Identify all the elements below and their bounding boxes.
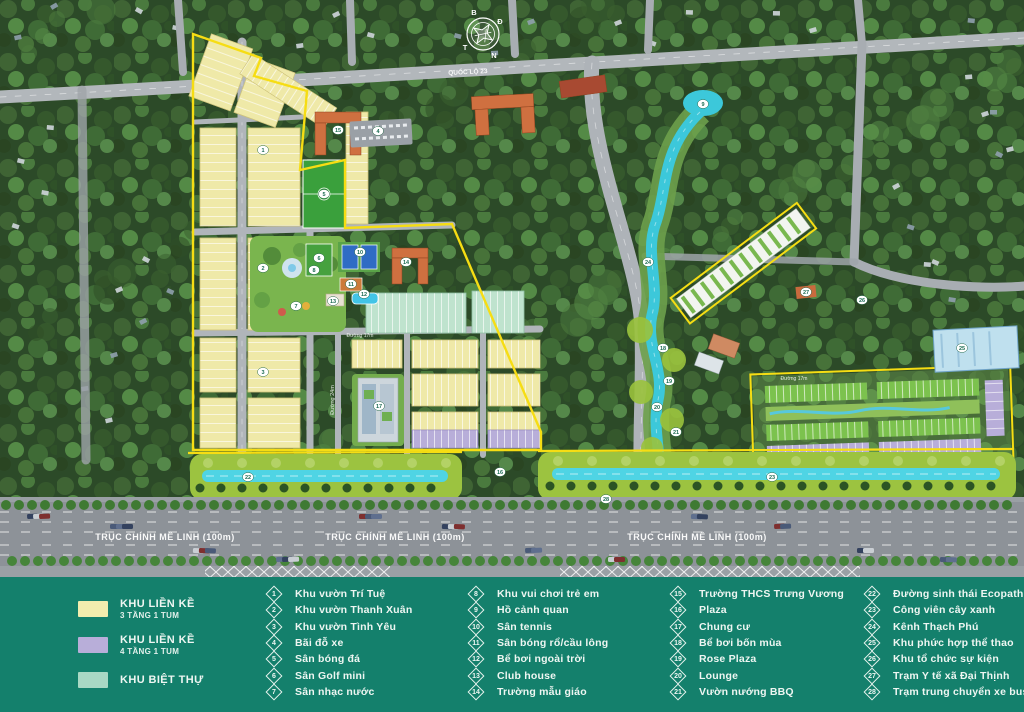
legend-item-number-badge: 5 — [266, 651, 283, 668]
svg-text:1: 1 — [261, 148, 264, 154]
legend-item-label: Khu vườn Thanh Xuân — [295, 604, 412, 616]
map-marker: 22 — [243, 473, 254, 482]
legend-item: 23Công viên cây xanh — [864, 602, 1024, 618]
legend-item-number-badge: 18 — [670, 635, 687, 652]
road-label-main-axis: TRỤC CHÍNH MÊ LINH (100m) — [627, 531, 767, 542]
map-marker: 1 — [258, 146, 269, 155]
map-marker: 25 — [957, 344, 968, 353]
legend-item-number-badge: 11 — [468, 635, 485, 652]
legend-swatch-row-bietthu: KHU BIỆT THỰ — [78, 672, 204, 688]
legend-swatch-row-lienke3: KHU LIỀN KỀ 3 TẦNG 1 TUM — [78, 598, 195, 620]
legend-item-label: Hồ cảnh quan — [497, 604, 569, 616]
swatch-label: KHU BIỆT THỰ — [120, 674, 204, 687]
map-marker: 21 — [671, 428, 682, 437]
svg-text:17: 17 — [376, 404, 382, 410]
legend-item-number-badge: 12 — [468, 651, 485, 668]
legend-item-number-badge: 25 — [864, 635, 881, 652]
svg-text:11: 11 — [348, 282, 354, 288]
legend-item: 13Club house — [468, 667, 608, 683]
legend-item-number-badge: 23 — [864, 602, 881, 619]
legend-item-label: Khu phức hợp thể thao — [893, 637, 1014, 649]
legend-item: 18Bể bơi bốn mùa — [670, 635, 844, 651]
legend-item-number-badge: 28 — [864, 683, 881, 700]
legend-item-label: Sân Golf mini — [295, 670, 365, 682]
map-marker: 20 — [652, 403, 663, 412]
road-label-main-axis: TRỤC CHÍNH MÊ LINH (100m) — [325, 531, 465, 542]
svg-text:26: 26 — [859, 298, 865, 304]
legend-item-number-badge: 6 — [266, 667, 283, 684]
legend-item-number-badge: 13 — [468, 667, 485, 684]
map-marker: 27 — [801, 288, 812, 297]
svg-text:14: 14 — [403, 260, 410, 266]
legend-item-number-badge: 21 — [670, 683, 687, 700]
map-canvas: TRỤC CHÍNH MÊ LINH (100m) TRỤC CHÍNH MÊ … — [0, 0, 1024, 577]
legend-item-label: Bể bơi bốn mùa — [699, 637, 782, 649]
legend-item-label: Sân nhạc nước — [295, 686, 375, 698]
svg-text:15: 15 — [335, 128, 341, 134]
legend-item-label: Bể bơi ngoài trời — [497, 653, 585, 665]
legend-item-label: Kênh Thạch Phú — [893, 621, 979, 633]
sports-complex — [933, 326, 1019, 372]
legend-item: 28Trạm trung chuyển xe bus — [864, 684, 1024, 700]
svg-text:13: 13 — [330, 299, 336, 305]
swatch-sublabel: 4 TẦNG 1 TUM — [120, 647, 195, 656]
map-marker: 6 — [314, 254, 325, 263]
legend-item: 25Khu phức hợp thể thao — [864, 635, 1024, 651]
road-label-17m: Đường 17m — [781, 376, 808, 382]
legend-item: 8Khu vui chơi trẻ em — [468, 586, 608, 602]
map-marker: 2 — [258, 264, 269, 273]
map-marker: 23 — [767, 473, 778, 482]
map-marker: 15 — [333, 126, 344, 135]
swatch-label: KHU LIỀN KỀ — [120, 634, 195, 647]
legend-item: 27Trạm Y tế xã Đại Thịnh — [864, 667, 1024, 683]
legend-item-number-badge: 22 — [864, 586, 881, 603]
compass-letter-east: Đ — [497, 17, 503, 26]
legend-item-label: Chung cư — [699, 621, 750, 633]
svg-text:19: 19 — [666, 379, 672, 385]
villa-blocks-mint — [366, 291, 524, 333]
road-label-24m: Đường 24m — [330, 385, 336, 415]
legend-item-label: Lounge — [699, 670, 738, 682]
legend-item-label: Công viên cây xanh — [893, 604, 995, 616]
map-marker: 12 — [359, 290, 370, 299]
legend-item-number-badge: 2 — [266, 602, 283, 619]
legend-item-number-badge: 1 — [266, 586, 283, 603]
legend-item-label: Trạm trung chuyển xe bus — [893, 686, 1024, 698]
legend-item-label: Plaza — [699, 604, 727, 616]
legend-item: 6Sân Golf mini — [266, 667, 412, 683]
svg-text:3: 3 — [261, 370, 264, 376]
svg-text:21: 21 — [673, 430, 679, 436]
svg-text:16: 16 — [497, 470, 503, 476]
legend-item: 21Vườn nướng BBQ — [670, 684, 844, 700]
road-label-17m: Đường 17m — [347, 333, 374, 339]
plot-blocks-lavender — [412, 430, 540, 448]
legend-item: 15Trường THCS Trưng Vương — [670, 586, 844, 602]
legend-column-2: 8Khu vui chơi trẻ em9Hồ cảnh quan10Sân t… — [468, 586, 608, 700]
legend-column-1: 1Khu vườn Trí Tuệ2Khu vườn Thanh Xuân3Kh… — [266, 586, 412, 700]
legend-item: 22Đường sinh thái Ecopath — [864, 586, 1024, 602]
svg-text:5: 5 — [322, 192, 325, 198]
svg-text:20: 20 — [654, 405, 660, 411]
legend-item: 12Bể bơi ngoài trời — [468, 651, 608, 667]
svg-text:28: 28 — [603, 497, 609, 503]
legend-item-label: Khu vui chơi trẻ em — [497, 588, 599, 600]
map-marker: 11 — [346, 280, 357, 289]
svg-text:6: 6 — [317, 256, 320, 262]
legend-item-label: Sân bóng đá — [295, 653, 360, 665]
map-marker: 17 — [374, 402, 385, 411]
swatch-lienke3 — [78, 601, 108, 617]
map-marker: 16 — [495, 468, 506, 477]
legend-item-number-badge: 4 — [266, 635, 283, 652]
legend-item: 4Bãi đỗ xe — [266, 635, 412, 651]
svg-text:8: 8 — [312, 268, 315, 274]
map-marker: 18 — [658, 344, 669, 353]
map-marker: 7 — [291, 302, 302, 311]
swatch-label: KHU LIỀN KỀ — [120, 598, 195, 611]
swatch-lienke4 — [78, 637, 108, 653]
svg-text:12: 12 — [361, 292, 367, 298]
legend-item-label: Trạm Y tế xã Đại Thịnh — [893, 670, 1010, 682]
legend-item: 11Sân bóng rổ/cầu lông — [468, 635, 608, 651]
legend-item-number-badge: 16 — [670, 602, 687, 619]
legend-item: 19Rose Plaza — [670, 651, 844, 667]
legend-item-number-badge: 7 — [266, 683, 283, 700]
map-marker: 19 — [664, 377, 675, 386]
legend-column-4: 22Đường sinh thái Ecopath23Công viên cây… — [864, 586, 1024, 700]
walkway-lattice — [205, 566, 390, 577]
svg-text:9: 9 — [701, 102, 704, 108]
legend-item-label: Bãi đỗ xe — [295, 637, 343, 649]
legend-item-label: Vườn nướng BBQ — [699, 686, 794, 698]
legend-item-number-badge: 26 — [864, 651, 881, 668]
map-marker: 5 — [319, 190, 330, 199]
svg-text:22: 22 — [245, 475, 251, 481]
legend-item-label: Đường sinh thái Ecopath — [893, 588, 1024, 600]
map-marker: 26 — [857, 296, 868, 305]
svg-text:7: 7 — [294, 304, 297, 310]
legend-item-label: Sân bóng rổ/cầu lông — [497, 637, 608, 649]
legend-item-number-badge: 14 — [468, 683, 485, 700]
map-marker: 24 — [643, 258, 654, 267]
map-marker: 13 — [328, 297, 339, 306]
legend-item: 26Khu tổ chức sự kiện — [864, 651, 1024, 667]
legend-item-number-badge: 20 — [670, 667, 687, 684]
legend-item-label: Khu vườn Trí Tuệ — [295, 588, 385, 600]
map-marker: 10 — [355, 248, 366, 257]
legend-item-number-badge: 8 — [468, 586, 485, 603]
compass-letter-west: T — [463, 43, 468, 52]
legend-item: 9Hồ cảnh quan — [468, 602, 608, 618]
legend-item-number-badge: 15 — [670, 586, 687, 603]
svg-text:23: 23 — [769, 475, 775, 481]
legend-item-number-badge: 10 — [468, 618, 485, 635]
map-marker: 14 — [401, 258, 412, 267]
legend-column-3: 15Trường THCS Trưng Vương16Plaza17Chung … — [670, 586, 844, 700]
swatch-bietthu — [78, 672, 108, 688]
masterplan-poster: TRỤC CHÍNH MÊ LINH (100m) TRỤC CHÍNH MÊ … — [0, 0, 1024, 712]
road-label-main-axis: TRỤC CHÍNH MÊ LINH (100m) — [95, 531, 235, 542]
legend-item-number-badge: 17 — [670, 618, 687, 635]
legend-item: 1Khu vườn Trí Tuệ — [266, 586, 412, 602]
legend-panel: KHU LIỀN KỀ 3 TẦNG 1 TUM KHU LIỀN KỀ 4 T… — [0, 577, 1024, 712]
map-marker: 28 — [601, 495, 612, 504]
legend-item-label: Khu vườn Tình Yêu — [295, 621, 396, 633]
swatch-sublabel: 3 TẦNG 1 TUM — [120, 611, 195, 620]
legend-item-number-badge: 27 — [864, 667, 881, 684]
legend-item: 17Chung cư — [670, 619, 844, 635]
compass-letter-south: N — [491, 51, 496, 60]
legend-item: 24Kênh Thạch Phú — [864, 619, 1024, 635]
legend-item-label: Trường THCS Trưng Vương — [699, 588, 844, 600]
svg-text:27: 27 — [803, 290, 809, 296]
svg-text:25: 25 — [959, 346, 965, 352]
compass-letter-north: B — [471, 8, 477, 17]
legend-item: 3Khu vườn Tình Yêu — [266, 619, 412, 635]
legend-item-number-badge: 3 — [266, 618, 283, 635]
legend-item: 16Plaza — [670, 602, 844, 618]
legend-item-label: Trường mẫu giáo — [497, 686, 587, 698]
svg-text:18: 18 — [660, 346, 666, 352]
legend-swatch-row-lienke4: KHU LIỀN KỀ 4 TẦNG 1 TUM — [78, 634, 195, 656]
legend-item-number-badge: 24 — [864, 618, 881, 635]
legend-item-label: Club house — [497, 670, 556, 682]
walkway-lattice — [560, 566, 860, 577]
map-marker: 9 — [698, 100, 709, 109]
legend-item-number-badge: 9 — [468, 602, 485, 619]
legend-item: 14Trường mẫu giáo — [468, 684, 608, 700]
svg-text:24: 24 — [645, 260, 652, 266]
legend-item-label: Rose Plaza — [699, 653, 756, 665]
legend-item-number-badge: 19 — [670, 651, 687, 668]
legend-item: 2Khu vườn Thanh Xuân — [266, 602, 412, 618]
legend-item-label: Sân tennis — [497, 621, 552, 633]
map-marker: 4 — [373, 127, 384, 136]
legend-item: 5Sân bóng đá — [266, 651, 412, 667]
legend-item: 10Sân tennis — [468, 619, 608, 635]
legend-item: 20Lounge — [670, 667, 844, 683]
legend-item-label: Khu tổ chức sự kiện — [893, 653, 999, 665]
svg-text:2: 2 — [261, 266, 264, 272]
map-marker: 8 — [309, 266, 320, 275]
eco-parks — [188, 449, 1016, 500]
map-marker: 3 — [258, 368, 269, 377]
svg-text:10: 10 — [357, 250, 363, 256]
legend-item: 7Sân nhạc nước — [266, 684, 412, 700]
